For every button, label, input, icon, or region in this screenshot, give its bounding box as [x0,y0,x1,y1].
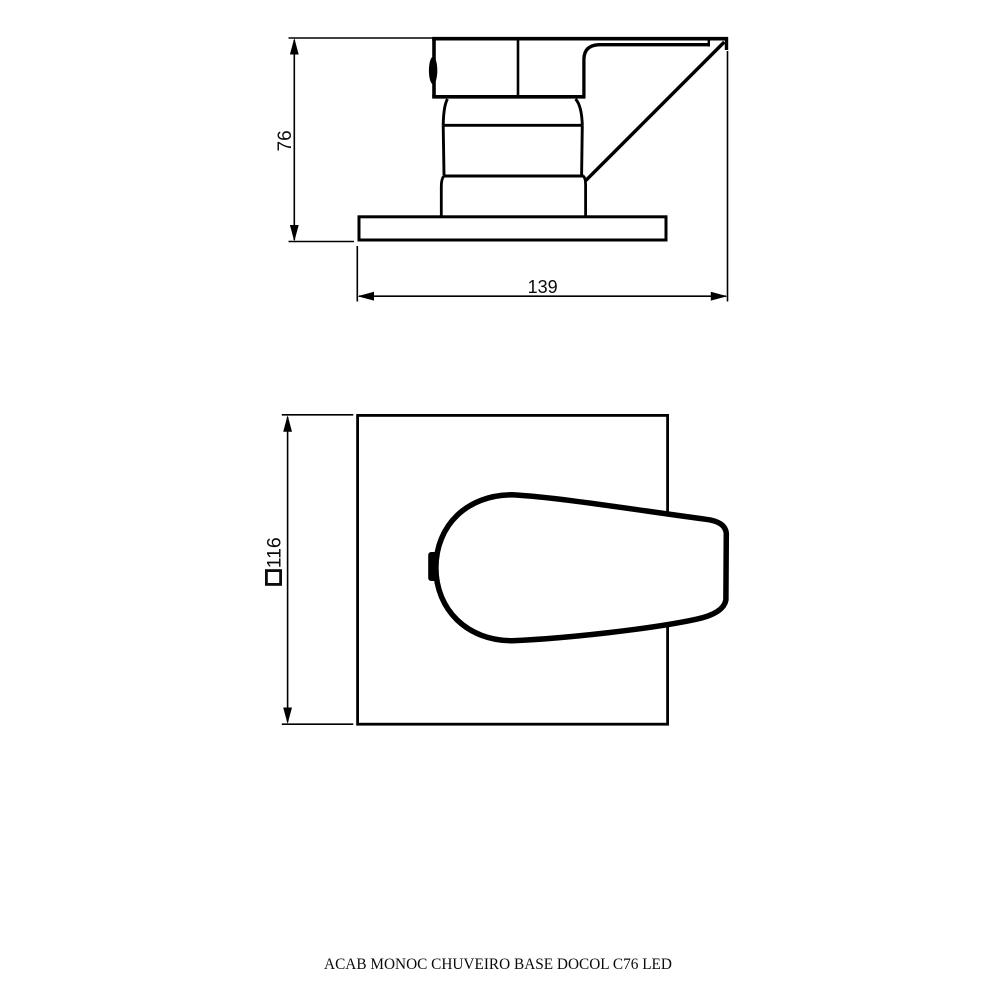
svg-text:76: 76 [275,130,296,151]
svg-text:ACAB MONOC CHUVEIRO BASE DOCOL: ACAB MONOC CHUVEIRO BASE DOCOL C76 LED [324,956,672,973]
svg-text:116: 116 [263,537,285,568]
svg-text:139: 139 [528,277,558,297]
